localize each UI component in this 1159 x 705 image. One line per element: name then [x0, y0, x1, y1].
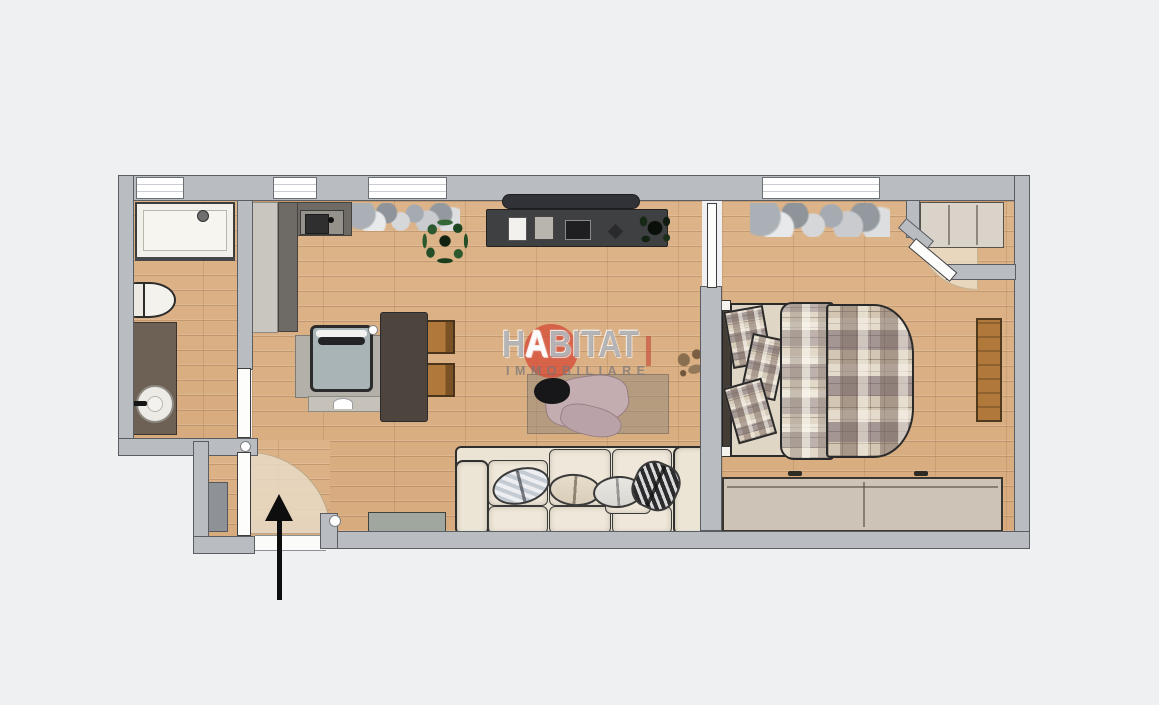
speaker — [565, 220, 591, 240]
door-stop-marker — [333, 398, 353, 409]
kitchen-counter-side — [278, 202, 298, 332]
closet-cabinet-divider — [948, 205, 950, 245]
shower — [135, 202, 235, 259]
storage-box — [534, 216, 554, 240]
bathroom-door — [237, 368, 251, 438]
watermark-subtitle: IMMOBILIARE — [506, 364, 651, 378]
wall-bottom — [326, 531, 1030, 549]
sideboard-plant — [632, 206, 678, 250]
shoe-cabinet — [208, 482, 228, 532]
dining-chair — [425, 363, 455, 397]
tall-cabinet — [250, 202, 278, 333]
watermark-letters: BITAT — [549, 324, 639, 366]
wall-entrance-bottom — [193, 536, 255, 554]
wall-right — [1014, 175, 1030, 549]
wardrobe — [722, 477, 1003, 532]
armchair-backrest — [318, 337, 365, 345]
washbasin-bowl — [147, 396, 163, 412]
wall-left — [118, 175, 134, 456]
wardrobe-handle — [788, 471, 802, 476]
wall-divider-bedroom — [700, 286, 722, 531]
bedroom-sliding-door — [707, 203, 717, 288]
window-kitchen — [273, 177, 317, 199]
entry-threshold — [255, 535, 326, 551]
window-bedroom — [762, 177, 880, 199]
entry-arrow-head — [265, 494, 293, 521]
kitchen-sink-basin — [305, 214, 329, 234]
black-fur-cushion — [534, 378, 570, 404]
wall-bathroom-right — [237, 200, 253, 370]
window-living-room — [368, 177, 447, 199]
potted-plant — [416, 212, 474, 270]
wardrobe-handle — [914, 471, 928, 476]
tv — [502, 194, 640, 209]
closet-cabinet-divider — [976, 205, 978, 245]
wardrobe-divider — [863, 482, 865, 527]
book-stack — [508, 217, 527, 241]
shower-drain — [197, 210, 209, 222]
watermark-letter-accent: A — [525, 324, 548, 366]
dining-table — [380, 312, 428, 422]
watermark-letter: H — [502, 324, 525, 366]
shower-glass — [135, 257, 235, 261]
low-sideboard — [368, 512, 446, 532]
watermark-side-mark — [646, 336, 651, 366]
door-swing-dot — [329, 515, 341, 527]
door-stop-dot — [368, 325, 378, 335]
decor-object — [608, 224, 624, 240]
entry-door — [237, 452, 251, 536]
duvet — [826, 304, 914, 458]
double-bed — [720, 298, 912, 458]
dining-chair — [425, 320, 455, 354]
entry-arrow-shaft — [277, 518, 282, 600]
door-hinge-dot — [240, 441, 251, 452]
shoe-row — [750, 203, 890, 237]
floor-plan: HABITAT IMMOBILIARE — [0, 0, 1159, 705]
sofa-seat-cushion — [488, 506, 548, 534]
kitchen-sink — [300, 210, 344, 235]
wall-bench — [976, 318, 1002, 422]
window-bathroom — [136, 177, 184, 199]
armchair — [310, 325, 373, 392]
armchair-headrest — [316, 330, 367, 337]
sofa-seat-cushion — [549, 506, 611, 534]
watermark-brand: HABITAT — [502, 324, 639, 367]
shower-tray — [143, 210, 227, 251]
sofa — [455, 446, 707, 534]
sofa-armrest-left — [455, 460, 489, 536]
toilet-tank — [134, 284, 145, 316]
kitchen-faucet — [328, 217, 334, 223]
